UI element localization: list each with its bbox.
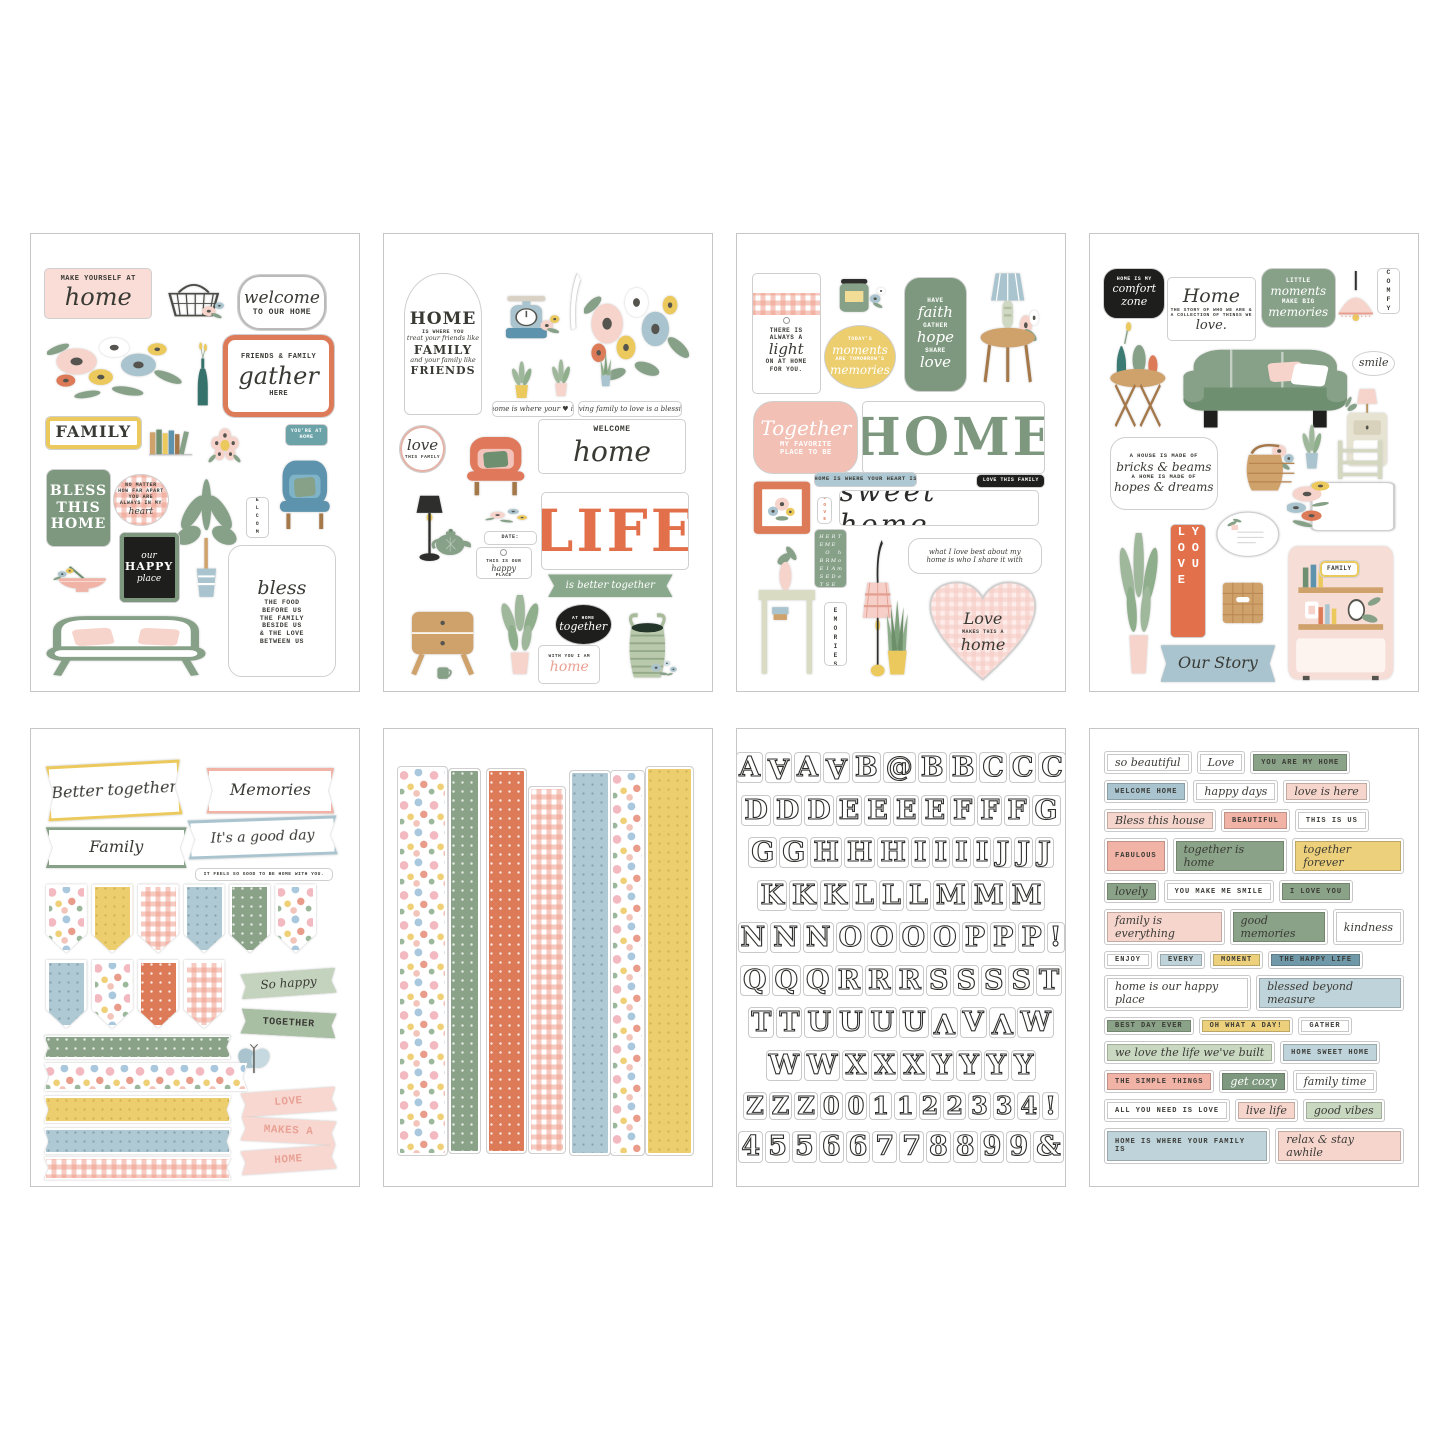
- love-you-vertical-label: LOVE YOU: [1174, 525, 1202, 637]
- letter-sticker: J: [1035, 837, 1054, 868]
- letter-sticker: Q: [772, 965, 802, 996]
- letter-sticker: U: [868, 1007, 898, 1038]
- bless-the-food-frame-text: blessTHE FOODBEFORE USTHE FAMILYBESIDE U…: [229, 576, 335, 646]
- tall-plant-pink-pot: [1110, 533, 1167, 679]
- word-sticker: home is our happy place: [1104, 975, 1251, 1011]
- memories-vertical-tag: MEMORIES: [824, 602, 847, 666]
- letter-sticker: U: [804, 1007, 834, 1038]
- green-teapot: [425, 522, 477, 561]
- pennant-pink-gingham: [138, 884, 179, 953]
- letter-sticker: Y: [1011, 1050, 1036, 1081]
- todays-moments-oval-text: TODAY'SmomentsARE TOMORROW'Smemories: [825, 336, 895, 378]
- is-better-together-banner-text: is better together: [548, 579, 673, 593]
- letter-sticker: K: [789, 880, 818, 911]
- light-on-at-home-tag-text: THERE ISALWAYS AlightON AT HOMEFOR YOU.: [752, 326, 821, 374]
- word-strip-row: FABULOUStogether is hometogether forever: [1104, 838, 1404, 874]
- letter-sticker: @: [883, 752, 916, 783]
- make-yourself-at-home-label: MAKE YOURSELF AThome: [44, 268, 152, 318]
- word-sticker: BEST DAY EVER: [1104, 1017, 1194, 1035]
- family-sign-text: FAMILY: [1320, 564, 1359, 573]
- letter-sticker: W: [804, 1050, 840, 1081]
- row-of-books: [147, 415, 196, 461]
- youre-at-home-label-text: YOU'RE ATHOME: [286, 428, 327, 442]
- letter-sticker: S: [1008, 965, 1034, 996]
- letter-sticker: I: [911, 837, 930, 868]
- word-sticker: OH WHAT A DAY!: [1199, 1017, 1294, 1035]
- with-you-i-am-home-label: WITH YOU I AMhome: [538, 645, 600, 684]
- bless-this-home-label: BLESSTHISHOME: [46, 469, 112, 547]
- sweet-home-script: sweet home: [839, 490, 1039, 527]
- small-flower-cluster: [482, 504, 538, 529]
- love-makes-this-a-home-heart: LoveMAKES THIS Ahome: [927, 579, 1039, 684]
- word-sticker: HOME SWEET HOME: [1280, 1041, 1380, 1064]
- word-sticker: lovely: [1104, 880, 1159, 903]
- letter-sticker: L: [906, 880, 931, 911]
- pennant-yellow-dot: [92, 884, 133, 953]
- family-banner: Family: [46, 827, 187, 868]
- is-better-together-banner: is better together: [548, 574, 673, 597]
- wire-basket-with-flowers: [156, 275, 231, 330]
- letter-sticker: 8: [926, 1131, 951, 1162]
- letter-sticker: 0: [845, 1092, 868, 1120]
- our-story-banner: Our Story: [1161, 645, 1276, 682]
- word-sticker: together forever: [1292, 838, 1404, 874]
- ladder-shelf: [1329, 437, 1391, 483]
- letter-sticker: A: [765, 752, 792, 783]
- word-sticker: FABULOUS: [1104, 838, 1168, 874]
- letter-sticker: C: [1009, 752, 1037, 783]
- pennant-pink-gingham-2: [184, 960, 225, 1029]
- sticker-sheet-icons-2: HOMEIS WHERE YOUtreat your friends likeF…: [383, 233, 713, 692]
- love-this-family-strip: LOVE THIS FAMILY: [976, 474, 1045, 488]
- letter-sticker: M: [1009, 880, 1045, 911]
- bless-the-food-frame: blessTHE FOODBEFORE USTHE FAMILYBESIDE U…: [228, 545, 336, 678]
- letter-sticker: D: [773, 795, 802, 826]
- memories-vertical-tag: MEMORIES: [832, 602, 839, 666]
- alphabet-row: GGHHHIIIIJJJ: [747, 837, 1055, 868]
- ribbon-strip-yellow-dot: [44, 1096, 231, 1123]
- better-together-banner: Better together: [46, 760, 183, 822]
- pennant-green-dot: [229, 884, 270, 953]
- border-green-dot: [448, 768, 481, 1154]
- word-sticker: Bless this house: [1104, 809, 1216, 832]
- comfort-zone-label: HOME IS MYcomfortzone: [1103, 268, 1165, 318]
- word-sticker: ENJOY: [1104, 951, 1152, 969]
- letter-sticker: 1: [894, 1092, 917, 1120]
- letter-sticker: D: [804, 795, 833, 826]
- letter-sticker: T: [748, 1007, 774, 1038]
- letter-sticker: N: [803, 922, 834, 953]
- alphabet-row: KKKLLLMMM: [747, 880, 1055, 911]
- love-makes-a-home-banner: LOVEMAKES AHOME: [241, 1085, 336, 1176]
- sticker-sheet-words: so beautifulLoveYOU ARE MY HOMEWELCOME H…: [1089, 728, 1419, 1187]
- green-bench-with-pillows: [44, 606, 208, 681]
- so-happy-together-ribbon: So happyTOGETHER: [241, 955, 336, 1051]
- sticker-sheet-icons-1: MAKE YOURSELF AThomewelcomeTO OUR HOMEFR…: [30, 233, 360, 692]
- sticker-sheet-icons-3: THERE ISALWAYS AlightON AT HOMEFOR YOU.H…: [736, 233, 1066, 692]
- letter-sticker: U: [836, 1007, 866, 1038]
- it-feels-so-good-strip: IT FEELS SO GOOD TO BE HOME WITH YOU.: [195, 868, 333, 881]
- home-family-friends-arch: HOMEIS WHERE YOUtreat your friends likeF…: [404, 273, 483, 415]
- letter-sticker: Z: [743, 1092, 767, 1120]
- together-favorite-place-label: TogetherMY FAVORITEPLACE TO BE: [753, 401, 858, 474]
- alphabet-row: WWXXXYYYY: [747, 1050, 1055, 1081]
- letter-sticker: 1: [869, 1092, 892, 1120]
- word-strip-row: WELCOME HOMEhappy dayslove is here: [1104, 780, 1404, 803]
- border-pink-gingham: [528, 786, 566, 1154]
- letter-sticker: A: [823, 752, 850, 783]
- letter-sticker: L: [852, 880, 877, 911]
- letter-sticker: J: [993, 837, 1012, 868]
- letter-sticker: N: [770, 922, 801, 953]
- our-story-banner-text: Our Story: [1161, 653, 1276, 674]
- family-sign: FAMILY: [1320, 561, 1359, 577]
- word-sticker: we love the life we've built: [1104, 1041, 1275, 1064]
- word-sticker: YOU MAKE ME SMILE: [1164, 880, 1274, 903]
- always-in-my-heart-circle: NO MATTERHOW FAR APARTYOU AREALWAYS IN M…: [113, 474, 169, 527]
- word-sticker: get cozy: [1219, 1070, 1287, 1093]
- at-home-together-oval: AT HOMEtogether: [555, 604, 612, 645]
- home-is-where-your-heart-is-strip: home is where your ♥ is: [492, 401, 574, 417]
- bricks-and-beams-label: A HOUSE IS MADE OFbricks & beamsA HOME I…: [1110, 437, 1218, 510]
- welcome-vertical-tag: WELCOME: [246, 497, 269, 538]
- letter-sticker: S: [953, 965, 979, 996]
- word-sticker: together is home: [1173, 838, 1288, 874]
- word-strip-row: THE SIMPLE THINGSget cozyfamily time: [1104, 1070, 1404, 1093]
- aloe-in-blue-pot: [591, 346, 621, 392]
- word-sticker: happy days: [1193, 780, 1278, 803]
- letter-sticker: 9: [1006, 1131, 1031, 1162]
- letter-sticker: 6: [846, 1131, 871, 1162]
- letter-sticker: Q: [803, 965, 833, 996]
- date-strip: DATE:: [484, 531, 536, 545]
- at-home-together-oval-text: AT HOMEtogether: [556, 615, 611, 635]
- comfort-zone-label-text: HOME IS MYcomfortzone: [1104, 276, 1164, 310]
- make-yourself-at-home-label-text: MAKE YOURSELF AThome: [45, 274, 151, 313]
- letter-sticker: !: [1047, 922, 1065, 953]
- home-word-sticker: HOME: [862, 401, 1046, 474]
- home-story-label-text: HomeTHE STORY OF WHO WE ARE &A COLLECTIO…: [1168, 284, 1255, 335]
- green-mug: [432, 661, 457, 684]
- letter-sticker: Y: [984, 1050, 1009, 1081]
- love-this-family-circle: loveTHIS FAMILY: [400, 426, 444, 472]
- our-happy-place-frame: ourHAPPYplace: [120, 533, 179, 602]
- word-strip-row: so beautifulLoveYOU ARE MY HOME: [1104, 751, 1404, 774]
- blue-flowers: [646, 654, 682, 681]
- bowl-with-flowers: [51, 561, 113, 602]
- sticker-sheet-alphabet: AAAAB@BBCCCDDDEEEEFFFGGGHHHIIIIJJJKKKLLL…: [736, 728, 1066, 1187]
- alphabet-row: ZZZ001122334!: [747, 1092, 1055, 1120]
- journal-oval-with-plant: [1215, 508, 1281, 561]
- letter-sticker: R: [865, 965, 893, 996]
- having-family-strip-text: having family to love is a blessing: [578, 404, 683, 414]
- welcome-to-our-home-label-text: welcomeTO OUR HOME: [238, 287, 327, 318]
- word-sticker: family is everything: [1104, 909, 1225, 945]
- table-with-lamp: [970, 266, 1045, 389]
- letter-sticker: A: [794, 752, 821, 783]
- plant-in-yellow-pot: [502, 355, 541, 401]
- border-blue-dot-scallop: [569, 770, 610, 1156]
- its-a-good-day-banner-text: It's a good day: [188, 826, 338, 850]
- word-sticker: ALL YOU NEED IS LOVE: [1104, 1099, 1230, 1122]
- letter-sticker: I: [952, 837, 971, 868]
- border-floral-scallop: [397, 766, 448, 1156]
- letter-sticker: P: [990, 922, 1016, 953]
- letter-sticker: M: [933, 880, 969, 911]
- letter-sticker: 9: [980, 1131, 1005, 1162]
- faith-hope-love-label-text: HAVEfaithGATHERhopeSHARElove: [905, 296, 965, 372]
- home-is-where-your-heart-is-strip-text: HOME IS WHERE YOUR HEART IS: [814, 475, 917, 483]
- alphabet-row: DDDEEEEFFFG: [747, 795, 1055, 826]
- letter-sticker: 5: [792, 1131, 817, 1162]
- sticker-sheets-grid: MAKE YOURSELF AThomewelcomeTO OUR HOMEFR…: [30, 233, 1419, 1187]
- letter-sticker: X: [842, 1050, 869, 1081]
- word-strip-row: BEST DAY EVEROH WHAT A DAY!GATHER: [1104, 1017, 1404, 1035]
- word-sticker: family time: [1293, 1070, 1378, 1093]
- letter-sticker: &: [1033, 1131, 1063, 1162]
- letter-sticker: E: [921, 795, 948, 826]
- letter-sticker: E: [864, 795, 891, 826]
- letter-sticker: G: [1032, 795, 1061, 826]
- letter-sticker: 6: [819, 1131, 844, 1162]
- word-strip-row: lovelyYOU MAKE ME SMILEI LOVE YOU: [1104, 880, 1404, 903]
- letter-sticker: S: [981, 965, 1007, 996]
- letter-sticker: Q: [740, 965, 770, 996]
- life-word-sticker: LIFE: [541, 492, 689, 570]
- letter-sticker: 2: [919, 1092, 942, 1120]
- letter-sticker: W: [766, 1050, 802, 1081]
- letter-sticker: 2: [943, 1092, 966, 1120]
- word-sticker: THE SIMPLE THINGS: [1104, 1070, 1214, 1093]
- journaling-card-with-flowers: [1287, 478, 1399, 535]
- smile-oval: smile: [1352, 351, 1395, 376]
- our-happy-place-frame-text: ourHAPPYplace: [120, 550, 179, 586]
- letter-sticker: K: [757, 880, 786, 911]
- snake-plant-yellow-pot: [871, 595, 923, 680]
- letter-sticker: M: [971, 880, 1007, 911]
- letter-sticker: N: [738, 922, 769, 953]
- vase-with-flowers: [188, 341, 218, 414]
- letter-sticker: F: [977, 795, 1002, 826]
- word-sticker: YOU ARE MY HOME: [1250, 751, 1350, 774]
- letter-sticker: B: [852, 752, 881, 783]
- word-sticker: relax & stay awhile: [1275, 1128, 1404, 1164]
- pennant-floral-3: [92, 960, 133, 1029]
- alphabet-row: NNNOOOOPPP!: [747, 922, 1055, 953]
- letter-sticker: V: [931, 1007, 958, 1038]
- welcome-vertical-tag: WELCOME: [254, 497, 260, 538]
- home-is-where-your-heart-is-strip-text: home is where your ♥ is: [492, 404, 574, 414]
- letter-sticker: 4: [1017, 1092, 1040, 1120]
- love-mini-tag: LOVE: [817, 497, 832, 524]
- tag-hole: [783, 317, 790, 324]
- letter-sticker: V: [989, 1007, 1016, 1038]
- word-sticker: EVERY: [1157, 951, 1205, 969]
- this-is-our-happy-place-tag: THIS IS OURhappyPLACE: [476, 547, 532, 579]
- family-label-text: FAMILY: [46, 422, 141, 443]
- word-sticker: GATHER: [1298, 1017, 1351, 1035]
- letter-sticker: 4: [738, 1131, 763, 1162]
- comfy-vertical-tag: COMFY: [1377, 268, 1400, 314]
- letter-sticker: W: [1017, 1007, 1053, 1038]
- letter-sticker: 7: [899, 1131, 924, 1162]
- pennant-floral: [46, 884, 87, 953]
- letter-sticker: O: [899, 922, 929, 953]
- smile-oval-text: smile: [1353, 356, 1394, 371]
- word-strip-row: Bless this houseBEAUTIFULTHIS IS US: [1104, 809, 1404, 832]
- letter-sticker: E: [893, 795, 920, 826]
- letter-sticker: H: [844, 837, 876, 868]
- single-flower: [202, 419, 248, 474]
- it-feels-so-good-strip-text: IT FEELS SO GOOD TO BE HOME WITH YOU.: [196, 871, 332, 878]
- letter-sticker: B: [949, 752, 978, 783]
- welcome-to-our-home-label: welcomeTO OUR HOME: [238, 275, 327, 330]
- sticker-sheet-icons-4: HOME IS MYcomfortzoneHomeTHE STORY OF WH…: [1089, 233, 1419, 692]
- word-sticker: BEAUTIFUL: [1221, 809, 1290, 832]
- word-sticker: good vibes: [1303, 1099, 1385, 1122]
- friends-family-gather-here-frame: FRIENDS & FAMILYgatherHERE: [223, 335, 335, 417]
- ribbon-strip-green-dot: [44, 1035, 231, 1059]
- pennant-blue-dot-2: [46, 960, 87, 1029]
- blue-armchair: [272, 456, 338, 534]
- letter-sticker: Z: [794, 1092, 818, 1120]
- with-you-i-am-home-label-text: WITH YOU I AMhome: [539, 653, 599, 677]
- friends-family-gather-here-frame-text: FRIENDS & FAMILYgatherHERE: [223, 352, 335, 399]
- ribbon-strip-floral: [44, 1063, 247, 1092]
- pennant-blue-dot: [184, 884, 225, 953]
- together-favorite-place-label-text: TogetherMY FAVORITEPLACE TO BE: [754, 416, 857, 458]
- bricks-and-beams-label-text: A HOUSE IS MADE OFbricks & beamsA HOME I…: [1111, 452, 1217, 495]
- letter-sticker: T: [776, 1007, 802, 1038]
- love-you-vertical-label: LOVE YOU: [1170, 524, 1206, 638]
- word-sticker: THE HAPPY LIFE: [1268, 951, 1363, 969]
- console-table-with-plant: [750, 542, 824, 684]
- word-sticker: live life: [1235, 1099, 1298, 1122]
- letter-sticker: J: [1014, 837, 1033, 868]
- letter-sticker: S: [926, 965, 952, 996]
- word-sticker: MOMENT: [1210, 951, 1263, 969]
- letter-sticker: B: [918, 752, 947, 783]
- word-sticker: love is here: [1283, 780, 1369, 803]
- border-floral-2: [610, 770, 645, 1156]
- letter-sticker: D: [741, 795, 770, 826]
- letter-sticker: 3: [968, 1092, 991, 1120]
- better-together-banner-text: Better together: [47, 777, 182, 805]
- letter-sticker: Y: [956, 1050, 981, 1081]
- word-strip-row: home is our happy placeblessed beyond me…: [1104, 975, 1404, 1011]
- family-label: FAMILY: [46, 417, 141, 449]
- alphabet-row: AAAAB@BBCCC: [747, 752, 1055, 783]
- family-banner-text: Family: [46, 837, 187, 858]
- letter-sticker: O: [930, 922, 960, 953]
- word-sticker: so beautiful: [1104, 751, 1192, 774]
- what-i-love-best-label-text: what I love best about myhome is who I s…: [909, 547, 1041, 566]
- faith-hope-love-label: HAVEfaithGATHERhopeSHARElove: [904, 277, 966, 391]
- word-strip-row: HOME IS WHERE YOUR FAMILY ISrelax & stay…: [1104, 1128, 1404, 1164]
- letter-sticker: 3: [993, 1092, 1016, 1120]
- letter-sticker: E: [836, 795, 863, 826]
- welcome-home-label-text: WELCOMEhome: [539, 424, 685, 468]
- orange-frame-with-flowers: [750, 478, 814, 537]
- word-strip-row: we love the life we've builtHOME SWEET H…: [1104, 1041, 1404, 1064]
- alphabet-row: 45566778899&: [747, 1131, 1055, 1162]
- letter-sticker: G: [748, 837, 777, 868]
- this-is-our-happy-place-tag-text: THIS IS OURhappyPLACE: [476, 558, 532, 580]
- pennant-orange-dot: [138, 960, 179, 1029]
- border-orange-dot: [486, 768, 527, 1154]
- home-story-label: HomeTHE STORY OF WHO WE ARE &A COLLECTIO…: [1167, 277, 1256, 341]
- flower-cluster: [47, 325, 181, 412]
- woven-cube-basket: [1215, 572, 1271, 631]
- letter-sticker: L: [879, 880, 904, 911]
- letter-sticker: V: [960, 1007, 987, 1038]
- love-this-family-strip-text: LOVE THIS FAMILY: [977, 477, 1044, 485]
- letter-sticker: A: [736, 752, 763, 783]
- letter-sticker: G: [779, 837, 808, 868]
- letter-sticker: 0: [820, 1092, 843, 1120]
- border-yellow-dot-scallop: [645, 766, 695, 1156]
- letter-sticker: T: [1036, 965, 1062, 996]
- letter-sticker: X: [900, 1050, 927, 1081]
- word-strip-row: family is everythinggood memorieskindnes…: [1104, 909, 1404, 945]
- sticker-sheet-borders: [383, 728, 713, 1187]
- letter-sticker: 8: [953, 1131, 978, 1162]
- letter-sticker: Z: [769, 1092, 793, 1120]
- letter-sticker: C: [979, 752, 1007, 783]
- letter-sticker: R: [835, 965, 863, 996]
- home-family-friends-arch-text: HOMEIS WHERE YOUtreat your friends likeF…: [405, 308, 482, 378]
- word-sticker: blessed beyond measure: [1256, 975, 1404, 1011]
- plant-in-pink-pot: [543, 353, 579, 399]
- pennant-floral-2: [275, 884, 316, 953]
- bless-this-home-label-text: BLESSTHISHOME: [47, 482, 111, 534]
- its-a-good-day-banner: It's a good day: [188, 816, 338, 860]
- word-sticker: good memories: [1230, 909, 1328, 945]
- memories-banner: Memories: [206, 768, 334, 814]
- love-mini-tag: LOVE: [822, 497, 827, 524]
- letter-sticker: H: [877, 837, 909, 868]
- date-strip-text: DATE:: [485, 534, 535, 542]
- letter-sticker: P: [1018, 922, 1044, 953]
- always-in-my-heart-circle-text: NO MATTERHOW FAR APARTYOU AREALWAYS IN M…: [114, 482, 168, 518]
- letter-sticker: X: [871, 1050, 898, 1081]
- word-sticker: I LOVE YOU: [1279, 880, 1353, 903]
- letter-sticker: H: [810, 837, 842, 868]
- side-table-with-vases: [1105, 321, 1171, 435]
- kitchen-scale: [487, 282, 566, 346]
- sticker-sheet-banners: Better togetherMemoriesFamilyIt's a good…: [30, 728, 360, 1187]
- letter-sticker: F: [1004, 795, 1029, 826]
- comfy-vertical-tag: COMFY: [1385, 269, 1392, 314]
- letter-sticker: O: [867, 922, 897, 953]
- letter-sticker: P: [962, 922, 988, 953]
- word-sticker: WELCOME HOME: [1104, 780, 1188, 803]
- letter-sticker: 5: [765, 1131, 790, 1162]
- coral-armchair: [458, 433, 533, 499]
- having-family-strip: having family to love is a blessing: [578, 401, 683, 417]
- word-sticker: Love: [1197, 751, 1246, 774]
- sticker-product-image: MAKE YOURSELF AThomewelcomeTO OUR HOMEFR…: [0, 0, 1445, 1445]
- love-this-family-circle-text: loveTHIS FAMILY: [400, 436, 444, 461]
- memories-banner-text: Memories: [206, 780, 334, 801]
- letter-sticker: I: [973, 837, 992, 868]
- letter-sticker: F: [950, 795, 975, 826]
- tag-hole: [500, 549, 507, 556]
- letter-sticker: O: [836, 922, 866, 953]
- ribbon-strip-blue-dot: [44, 1128, 231, 1155]
- letter-sticker: !: [1042, 1092, 1059, 1120]
- word-sticker: HOME IS WHERE YOUR FAMILY IS: [1104, 1128, 1270, 1164]
